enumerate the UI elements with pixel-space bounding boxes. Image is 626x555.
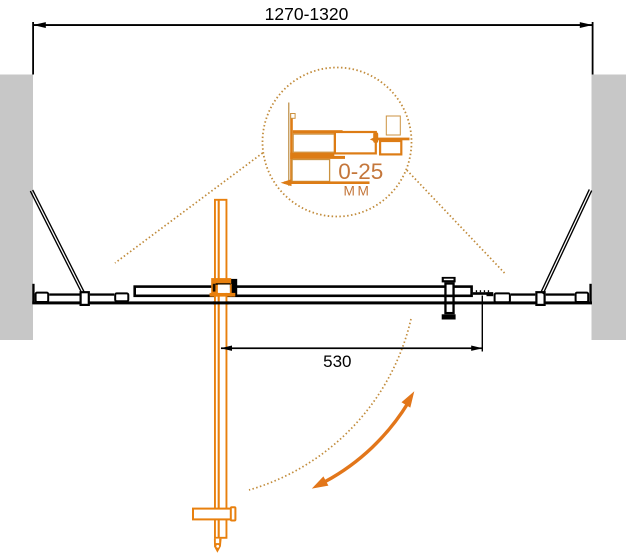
svg-text:0-25: 0-25 (338, 159, 383, 184)
svg-text:1270-1320: 1270-1320 (265, 4, 349, 24)
svg-text:530: 530 (323, 352, 351, 371)
svg-text:MM: MM (344, 184, 372, 199)
